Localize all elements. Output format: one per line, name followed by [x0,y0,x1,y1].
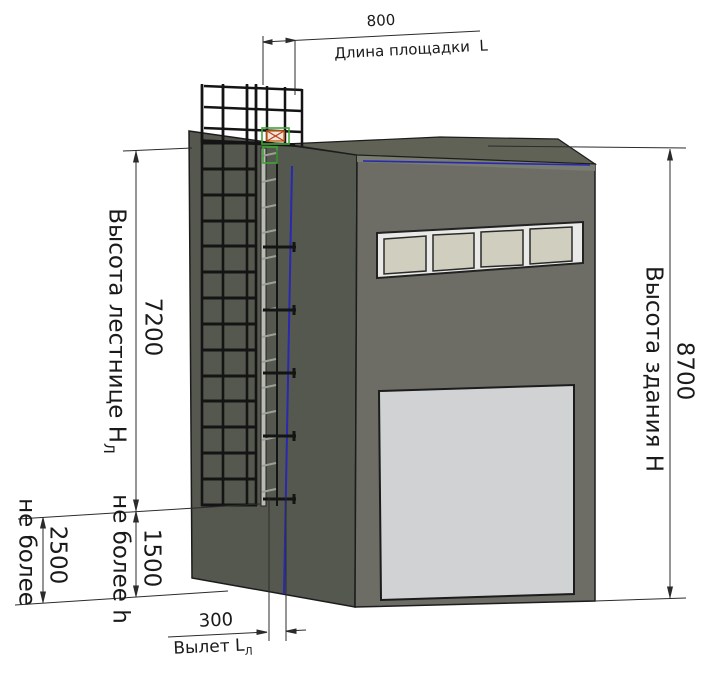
dim-value-ground-clearance: 2500 [46,526,69,585]
window-pane [433,233,474,271]
building [189,131,595,607]
window-pane [530,227,572,264]
dim-label-ladder-height: Высота лестнице НЛ [101,208,128,453]
window-pane [384,236,426,274]
dim-value-rung-clearance: 1500 [140,529,163,588]
standoff-subscript: Л [245,646,253,658]
dim-value-building-height: 8700 [673,342,696,401]
dim-label-rung-clearance: не более h [109,494,132,624]
dim-label-building-height: Высота здания Н [642,266,665,472]
standoff-text: Вылет L [173,636,245,659]
window-pane [481,230,523,267]
dim-label-ground-clearance: не более [15,498,38,606]
ladder-stringer [261,148,266,506]
door [379,385,574,600]
ext-roof-left [123,148,192,151]
dim-value-standoff: 300 [198,611,233,630]
ladder-height-text: Высота лестнице Н [103,208,129,443]
dim-value-platform-length: 800 [366,13,395,29]
dim-label-standoff: Вылет LЛ [173,637,253,660]
dim-value-ladder-height: 7200 [141,298,164,357]
ladder-height-subscript: Л [100,443,116,454]
ext-ground-right [595,598,686,601]
building-left-wall [189,131,357,607]
technical-drawing-canvas: 800 Длина площадки L Высота лестнице НЛ … [0,0,719,679]
